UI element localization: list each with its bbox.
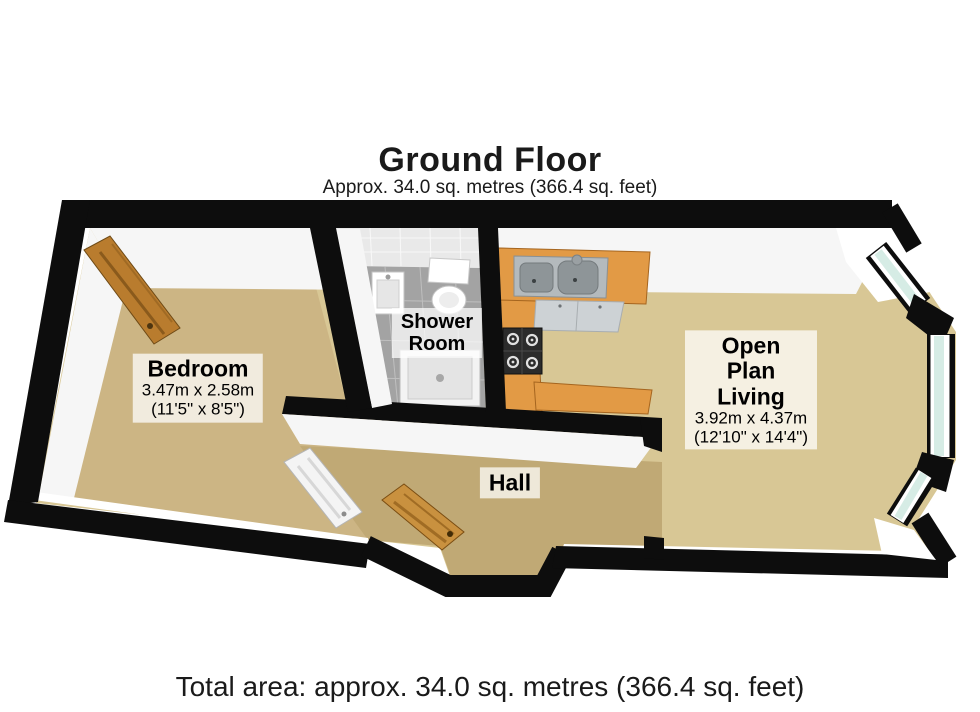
opl-dim-imperial: (12'10" x 14'4") bbox=[694, 428, 808, 447]
opl-name-line2: Plan bbox=[694, 359, 808, 384]
kitchen-cabinet bbox=[534, 300, 624, 332]
shower-room-name-line2: Room bbox=[401, 333, 473, 355]
bedroom-name: Bedroom bbox=[142, 357, 254, 382]
opl-dim-metric: 3.92m x 4.37m bbox=[694, 409, 808, 428]
shower-room-name-line1: Shower bbox=[401, 311, 473, 333]
wall-step bbox=[644, 536, 664, 560]
opl-name-line1: Open bbox=[694, 333, 808, 358]
bay-window-pane-right bbox=[939, 334, 941, 458]
open-plan-living-label: Open Plan Living 3.92m x 4.37m (12'10" x… bbox=[685, 330, 817, 449]
page-subtitle: Approx. 34.0 sq. metres (366.4 sq. feet) bbox=[0, 177, 980, 199]
page-title: Ground Floor bbox=[0, 141, 980, 180]
hall-name: Hall bbox=[489, 470, 531, 495]
kitchen-sink bbox=[514, 255, 608, 298]
hall-label: Hall bbox=[480, 467, 540, 498]
shower-room-label: Shower Room bbox=[392, 308, 482, 358]
bedroom-label: Bedroom 3.47m x 2.58m (11'5" x 8'5") bbox=[133, 354, 263, 423]
shower-tray bbox=[400, 350, 480, 406]
kitchen-hob bbox=[503, 328, 542, 374]
bedroom-dim-imperial: (11'5" x 8'5") bbox=[142, 401, 254, 420]
total-area-caption: Total area: approx. 34.0 sq. metres (366… bbox=[0, 671, 980, 703]
bedroom-dim-metric: 3.47m x 2.58m bbox=[142, 382, 254, 401]
opl-name-line3: Living bbox=[694, 384, 808, 409]
floorplan-page: Ground Floor Approx. 34.0 sq. metres (36… bbox=[0, 0, 980, 712]
